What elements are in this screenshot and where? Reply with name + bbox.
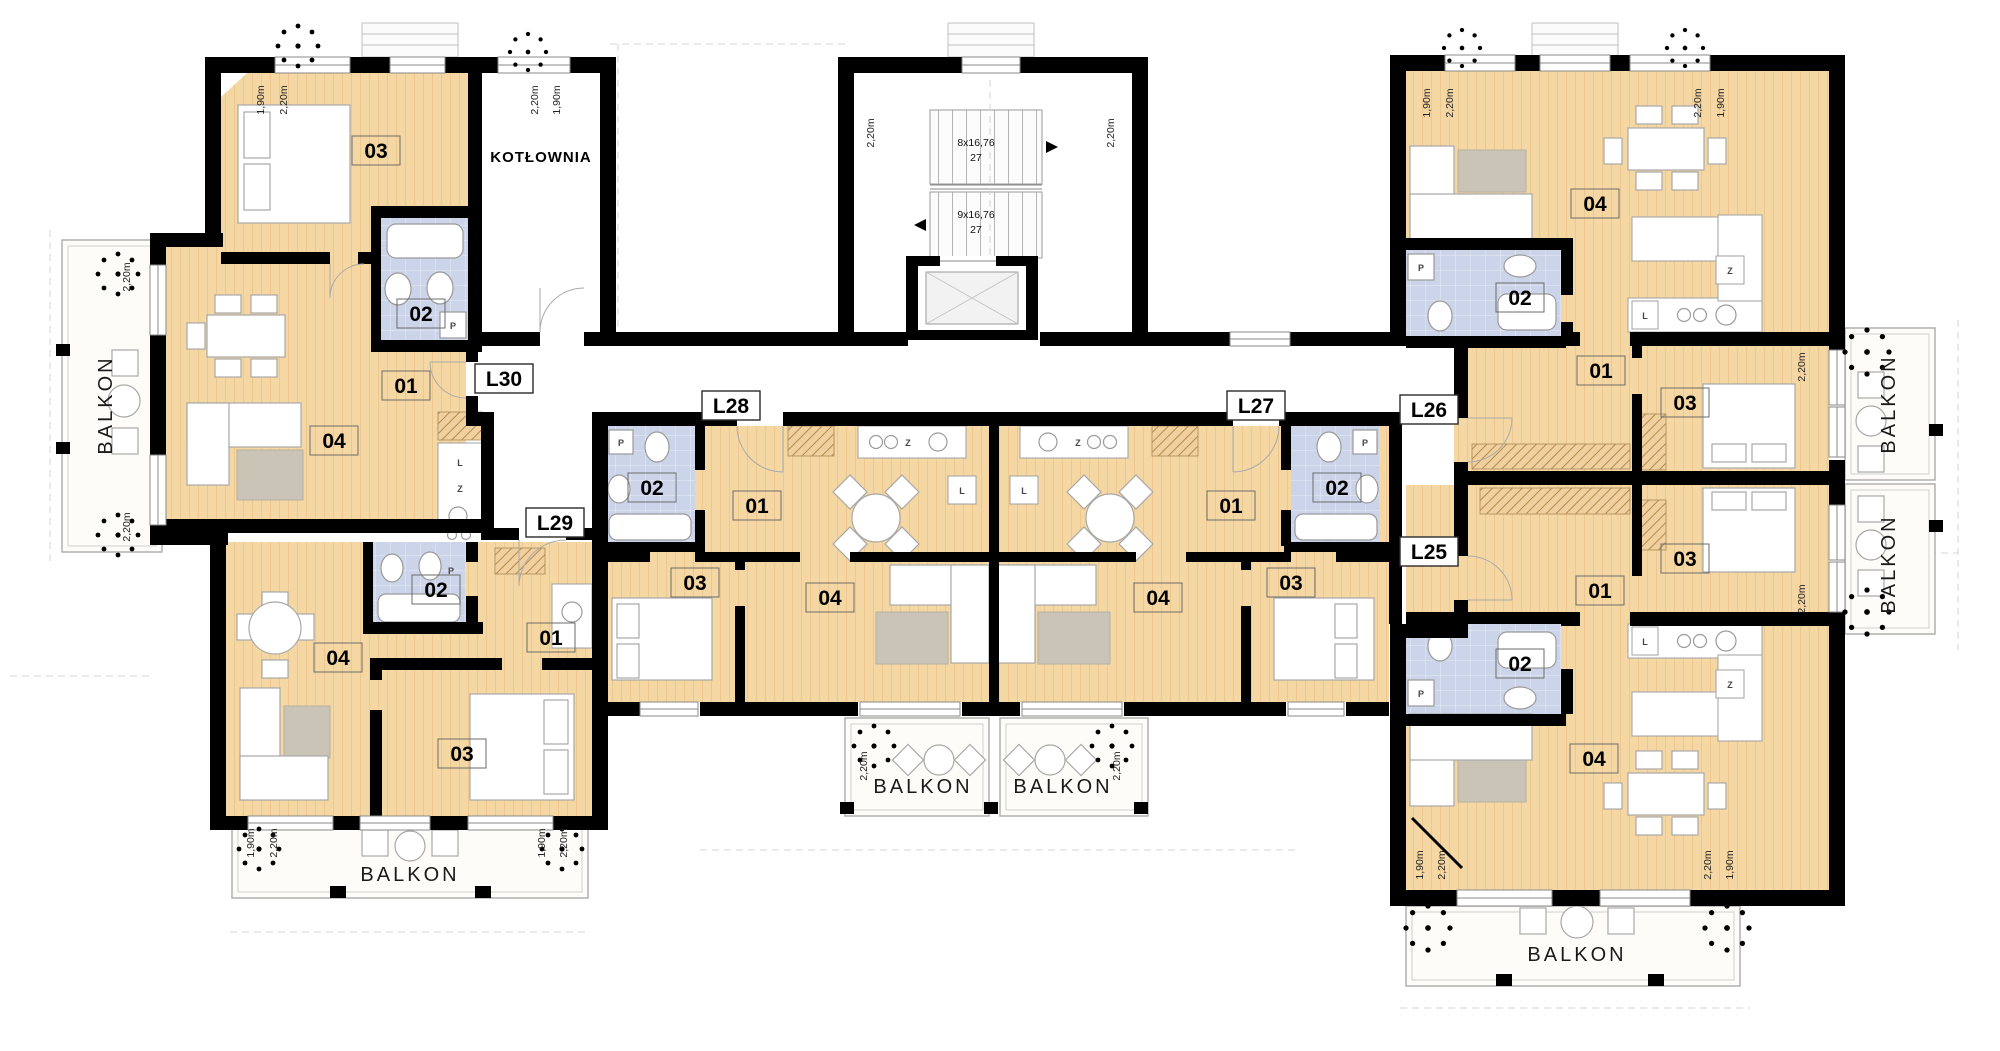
unit-label-l29: L29 [537,512,573,535]
room-label: 02 [1508,287,1531,310]
dim-label: 1,90m [536,828,548,857]
dim-label: 2,20m [121,512,133,541]
room-label: 01 [1588,580,1612,603]
dim-label: 1,90m [1421,88,1433,117]
fridge-label: L [457,458,463,468]
room-label: 01 [1589,360,1613,383]
dim-label: 2,20m [558,828,570,857]
dim-label: 1,90m [1414,850,1426,879]
balkon-label: BALKON [1878,514,1900,613]
unit-label-l28: L28 [713,395,750,418]
dishwasher-label: Z [1727,266,1733,276]
dim-label: 2,20m [1796,584,1808,613]
floor-plan-page: 03 02 01 04 02 01 04 03 02 01 03 04 02 0… [0,0,2000,1051]
bed [1703,488,1795,572]
room-label: 04 [326,647,350,670]
dim-label: 2,20m [268,828,280,857]
room-label: 02 [1325,477,1348,500]
room-label: 04 [322,430,346,453]
bed [238,105,350,223]
room-label: 04 [1582,748,1606,771]
dishwasher-label: Z [905,438,911,448]
room-label: 02 [409,303,432,326]
room-label: 02 [640,477,663,500]
dim-label: 2,20m [1692,88,1704,117]
room-label: 03 [1673,548,1696,571]
balkon-label: BALKON [1013,776,1112,798]
dim-label: 2,20m [1111,751,1123,780]
room-label: 01 [1219,495,1243,518]
sofa [876,565,989,664]
dim-label: 2,20m [1796,352,1808,381]
room-label: 03 [450,743,473,766]
balkon-label: BALKON [1878,354,1900,453]
washer-label: P [448,566,454,576]
sofa [997,565,1110,664]
unit-label-l26: L26 [1411,399,1447,422]
stair-steps-label: 27 [970,152,982,164]
unit-label-l30: L30 [486,368,522,391]
stair-flight-label: 9x16,76 [957,209,995,221]
unit-label-l27: L27 [1238,395,1274,418]
dishwasher-label: Z [1075,438,1081,448]
balcony-bottom-left [232,822,588,898]
balkon-label: BALKON [95,355,117,454]
washer-label: P [1418,263,1424,273]
dim-label: 1,90m [551,85,563,114]
dim-label: 2,20m [278,85,290,114]
room-label: 03 [364,140,387,163]
entrance-porches [362,23,1618,57]
bed [1703,384,1795,468]
room-label: 03 [1673,392,1696,415]
room-label: 03 [683,572,706,595]
room-label: 01 [539,627,563,650]
dim-label: 2,20m [1702,850,1714,879]
dim-label: 1,90m [245,828,257,857]
dim-label: 2,20m [1444,88,1456,117]
dim-label: 2,20m [865,118,877,147]
room-label: 04 [818,587,842,610]
room-label: 02 [424,579,447,602]
room-label: 04 [1146,587,1170,610]
floor-plan-drawing: 03 02 01 04 02 01 04 03 02 01 03 04 02 0… [0,0,2000,1051]
washer-label: P [1418,689,1424,699]
bed [1274,598,1374,680]
fridge-label: L [1642,637,1648,647]
stair-steps-label: 27 [970,224,982,236]
dim-label: 2,20m [858,751,870,780]
dim-label: 2,20m [529,85,541,114]
fridge-label: L [959,486,965,496]
washer-label: P [450,321,456,331]
room-label: 01 [394,375,418,398]
dim-label: 1,90m [1724,850,1736,879]
stair-flight-label: 8x16,76 [957,137,995,149]
dim-label: 2,20m [121,262,133,291]
room-label: 04 [1583,193,1607,216]
boiler-room-label: KOTŁOWNIA [490,149,591,166]
balkon-label: BALKON [360,864,459,886]
fridge-label: L [1021,486,1027,496]
room-label: 02 [1508,653,1531,676]
dim-label: 1,90m [1715,88,1727,117]
dishwasher-label: Z [1727,680,1733,690]
dim-label: 2,20m [1436,850,1448,879]
fridge-label: L [1642,311,1648,321]
unit-label-l25: L25 [1411,541,1448,564]
dim-label: 1,90m [255,85,267,114]
dishwasher-label: Z [457,484,463,494]
balkon-label: BALKON [873,776,972,798]
washer-label: P [1362,438,1368,448]
sofa [1410,714,1532,806]
balkon-label: BALKON [1527,944,1626,966]
dim-label: 2,20m [1105,118,1117,147]
room-label: 01 [745,495,769,518]
washer-label: P [618,438,624,448]
bed [612,598,712,680]
room-label: 03 [1279,572,1302,595]
elevator [906,256,1038,340]
sofa [187,403,303,500]
